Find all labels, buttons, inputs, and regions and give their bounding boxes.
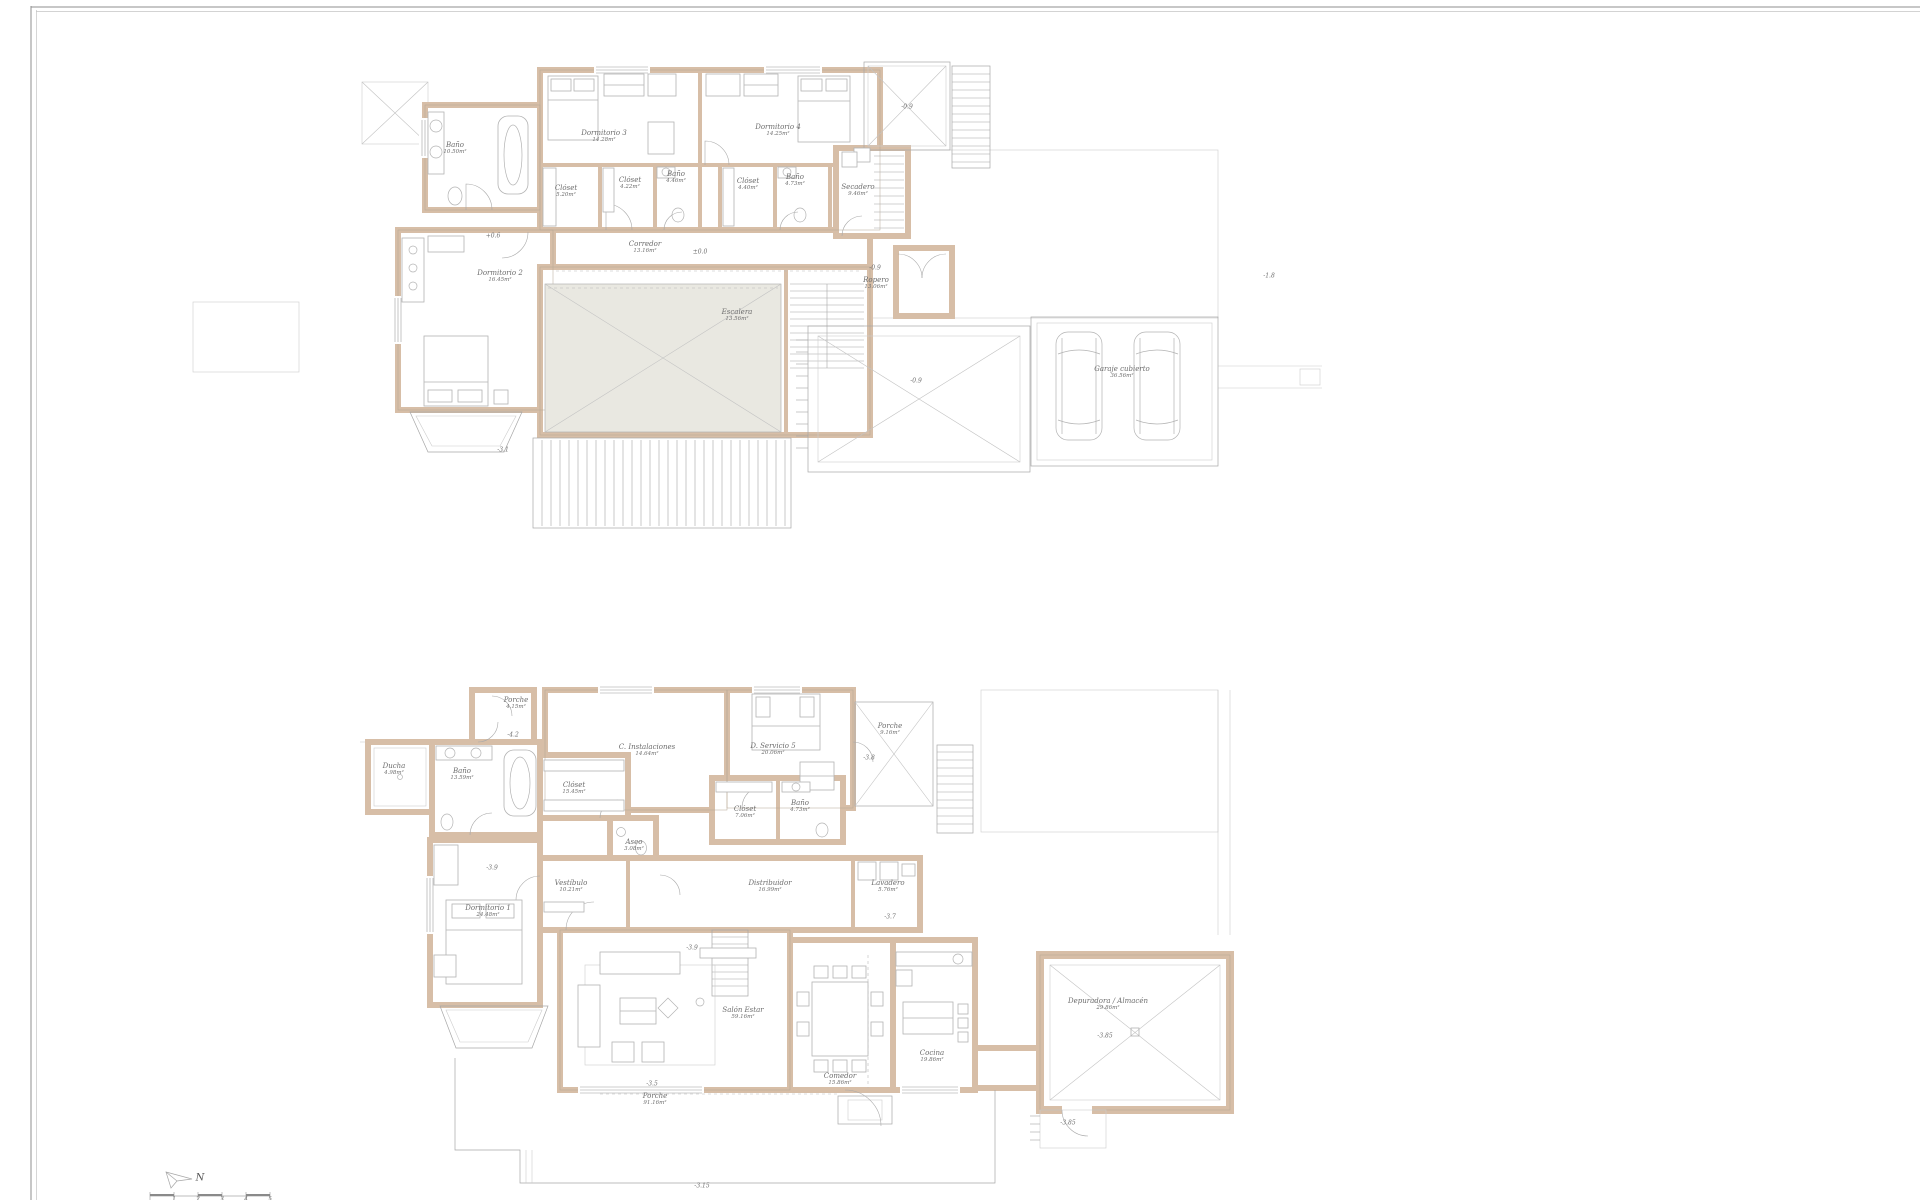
- room-label-closet-1: Clóset5.20m²: [555, 184, 577, 198]
- room-label-dormitorio-4: Dormitorio 414.25m²: [755, 123, 801, 137]
- room-label-instalaciones: C. Instalaciones14.64m²: [619, 743, 675, 757]
- room-label-escalera: Escalera13.56m²: [722, 308, 753, 322]
- level-annotation: -3.85: [1060, 1120, 1075, 1127]
- floor-plan-drawing: [0, 0, 1920, 1200]
- room-label-secadero: Secadero9.46m²: [841, 183, 874, 197]
- room-label-lavadero: Lavadero5.76m²: [871, 879, 904, 893]
- external-stair-ground: [937, 745, 973, 833]
- room-label-garaje: Garaje cubierto36.56m²: [1094, 365, 1150, 379]
- scale-bar: [150, 1192, 270, 1200]
- room-label-aseo: Aseo3.08m²: [624, 838, 644, 852]
- room-label-d-servicio-5: D. Servicio 520.06m²: [750, 742, 795, 756]
- room-label-cocina: Cocina19.86m²: [920, 1049, 944, 1063]
- room-label-closet-g2: Clóset7.06m²: [734, 805, 756, 819]
- north-label: N: [196, 1173, 205, 1184]
- room-label-closet-g: Clóset15.45m²: [562, 781, 585, 795]
- room-label-porche-tl: Porche4.15m²: [504, 696, 529, 710]
- room-label-salon-estar: Salón Estar59.16m²: [722, 1006, 763, 1020]
- scale-tick-label: 4: [244, 1196, 248, 1200]
- scale-tick-label: 2: [196, 1196, 200, 1200]
- level-annotation: -3.8: [863, 755, 875, 762]
- room-label-corredor: Corredor13.16m²: [629, 240, 661, 254]
- level-annotation: -0.9: [869, 265, 881, 272]
- level-annotation: -0.9: [901, 104, 913, 111]
- room-label-vestibulo: Vestíbulo10.21m²: [555, 879, 588, 893]
- level-annotation: -3.7: [884, 914, 896, 921]
- level-annotation: -0.9: [910, 378, 922, 385]
- room-label-bano-3: Baño4.73m²: [785, 173, 805, 187]
- room-label-dormitorio-2: Dormitorio 216.45m²: [477, 269, 523, 283]
- scale-tick-label: 1: [172, 1196, 176, 1200]
- scale-tick-label: 3: [220, 1196, 224, 1200]
- room-label-dormitorio-3: Dormitorio 314.28m²: [581, 129, 627, 143]
- room-label-ropero: Ropero13.06m²: [863, 276, 889, 290]
- room-label-porche-bottom: Porche91.16m²: [643, 1092, 668, 1106]
- level-annotation: -3.9: [486, 865, 498, 872]
- level-annotation: -3.1: [497, 447, 509, 454]
- car: [1134, 332, 1180, 440]
- room-label-porche-servicio: Porche9.16m²: [878, 722, 903, 736]
- scale-tick-label: 5: [268, 1196, 272, 1200]
- level-annotation: +0.6: [486, 233, 501, 240]
- room-label-ducha: Ducha4.98m²: [383, 762, 406, 776]
- room-label-closet-2: Clóset4.22m²: [619, 176, 641, 190]
- level-annotation: -3.85: [1097, 1033, 1112, 1040]
- north-arrow: [166, 1172, 192, 1188]
- level-annotation: -3.15: [694, 1183, 709, 1190]
- room-label-dormitorio-1: Dormitorio 124.48m²: [465, 904, 511, 918]
- room-label-bano-g2: Baño4.73m²: [790, 799, 810, 813]
- car: [1056, 332, 1102, 440]
- room-label-bano-2: Baño4.46m²: [666, 170, 686, 184]
- level-annotation: ±0.0: [693, 249, 708, 256]
- drawing-sheet: Dormitorio 314.28m² Dormitorio 414.25m² …: [0, 0, 1920, 1200]
- room-label-comedor: Comedor15.86m²: [824, 1072, 856, 1086]
- level-annotation: -3.9: [686, 945, 698, 952]
- void-hatch: [545, 284, 781, 432]
- room-label-closet-3: Clóset4.40m²: [737, 177, 759, 191]
- room-label-bano-principal: Baño10.50m²: [443, 141, 466, 155]
- room-label-bano-g: Baño13.59m²: [450, 767, 473, 781]
- terrace-steps-upper: [533, 438, 791, 528]
- level-annotation: -3.5: [646, 1081, 658, 1088]
- level-annotation: -4.2: [507, 732, 519, 739]
- garage: [1031, 317, 1218, 466]
- room-label-depuradora: Depuradora / Almacén29.86m²: [1068, 997, 1148, 1011]
- external-stair-upper: [952, 66, 990, 168]
- room-label-distribuidor: Distribuidor16.99m²: [748, 879, 791, 893]
- level-annotation: -1.8: [1263, 273, 1275, 280]
- ground-floor-plan: [360, 684, 1230, 1183]
